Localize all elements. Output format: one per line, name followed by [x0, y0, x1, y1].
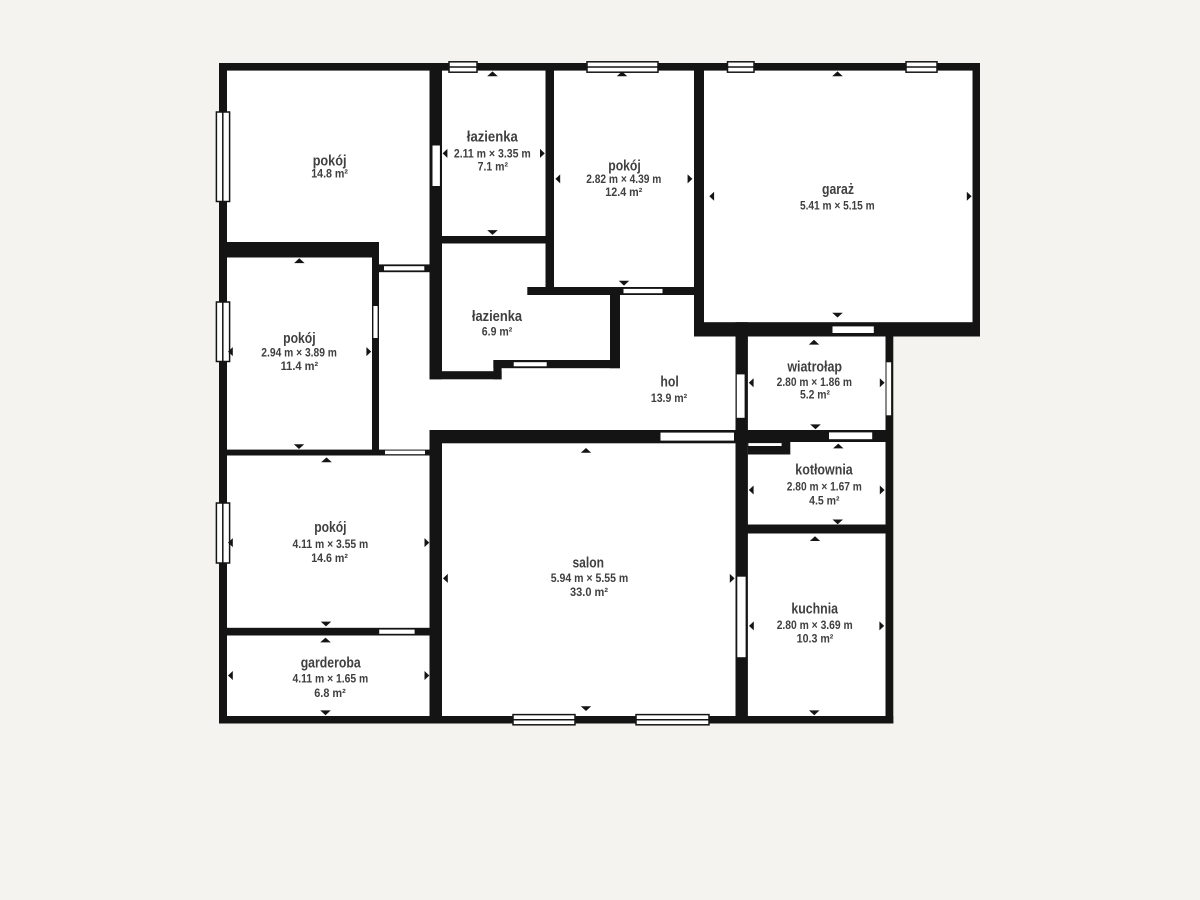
svg-text:5.94 m × 5.55 m: 5.94 m × 5.55 m	[551, 572, 629, 585]
svg-text:salon: salon	[572, 556, 604, 572]
svg-text:4.5 m²: 4.5 m²	[809, 494, 839, 507]
svg-text:garaż: garaż	[822, 182, 854, 198]
svg-text:5.41 m × 5.15 m: 5.41 m × 5.15 m	[800, 199, 875, 212]
svg-text:pokój: pokój	[314, 520, 346, 536]
svg-text:14.8 m²: 14.8 m²	[311, 168, 348, 181]
svg-text:kotłownia: kotłownia	[795, 462, 853, 478]
svg-text:pokój: pokój	[283, 331, 316, 347]
svg-text:12.4 m²: 12.4 m²	[605, 186, 642, 199]
svg-text:wiatrołap: wiatrołap	[786, 359, 842, 375]
svg-text:4.11 m × 3.55 m: 4.11 m × 3.55 m	[293, 538, 369, 551]
svg-text:łazienka: łazienka	[467, 130, 519, 146]
svg-text:10.3 m²: 10.3 m²	[797, 632, 834, 645]
svg-text:garderoba: garderoba	[301, 656, 362, 672]
svg-text:2.80 m × 3.69 m: 2.80 m × 3.69 m	[777, 619, 853, 632]
svg-text:kuchnia: kuchnia	[791, 602, 838, 618]
svg-text:7.1 m²: 7.1 m²	[478, 160, 508, 173]
svg-text:łazienka: łazienka	[472, 309, 523, 325]
svg-text:2.80 m × 1.86 m: 2.80 m × 1.86 m	[777, 376, 852, 389]
svg-text:2.82 m × 4.39 m: 2.82 m × 4.39 m	[586, 173, 661, 186]
svg-text:5.2 m²: 5.2 m²	[800, 389, 830, 402]
svg-text:2.94 m × 3.89 m: 2.94 m × 3.89 m	[261, 346, 337, 359]
svg-text:4.11 m × 1.65 m: 4.11 m × 1.65 m	[293, 673, 369, 686]
svg-text:2.80 m × 1.67 m: 2.80 m × 1.67 m	[787, 481, 862, 494]
svg-text:11.4 m²: 11.4 m²	[281, 360, 319, 373]
svg-text:6.9 m²: 6.9 m²	[482, 326, 512, 339]
svg-text:13.9 m²: 13.9 m²	[651, 392, 687, 405]
svg-text:33.0 m²: 33.0 m²	[570, 586, 608, 599]
svg-text:hol: hol	[660, 375, 678, 391]
svg-text:2.11 m × 3.35 m: 2.11 m × 3.35 m	[454, 147, 531, 160]
svg-text:6.8 m²: 6.8 m²	[314, 687, 346, 700]
svg-text:14.6 m²: 14.6 m²	[311, 552, 348, 565]
